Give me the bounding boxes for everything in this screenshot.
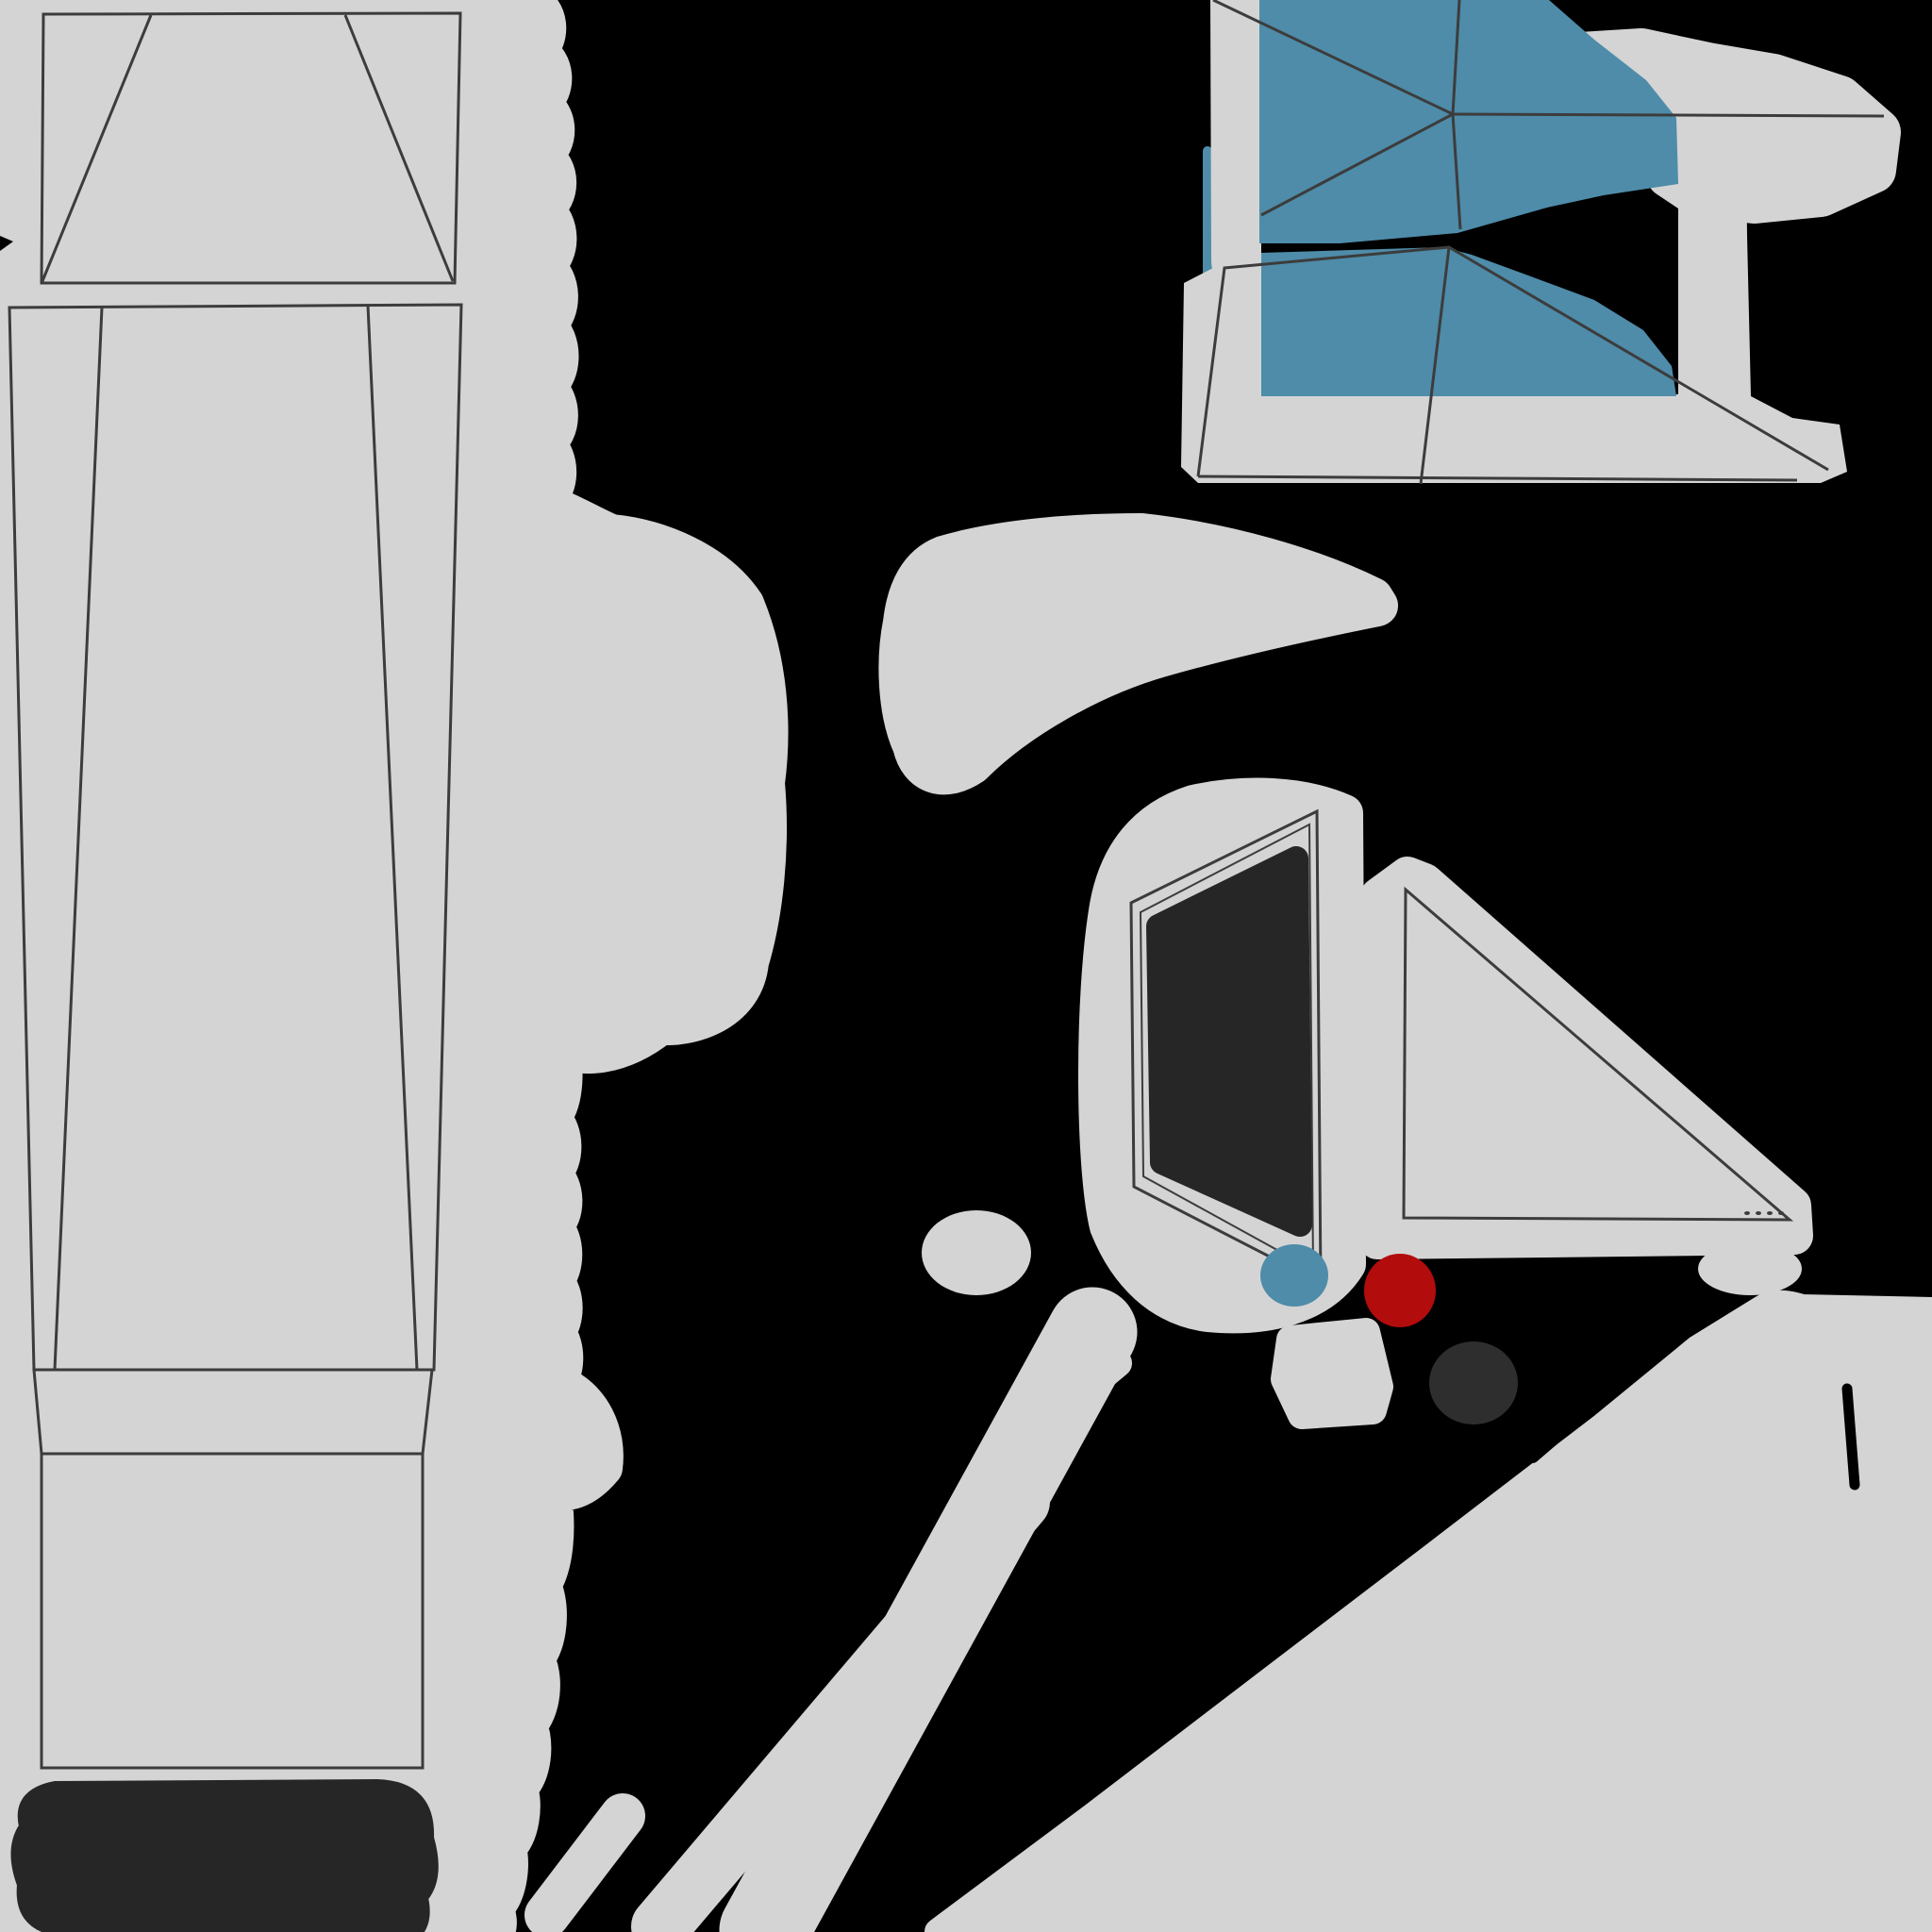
triangle-dot-4 bbox=[1778, 1211, 1784, 1215]
body-island bbox=[0, 0, 770, 1932]
paint-dot-blue bbox=[1260, 1244, 1328, 1307]
triangle-dot-2 bbox=[1756, 1211, 1761, 1215]
bumper-bar bbox=[14, 1783, 434, 1932]
underbody-sliver-a bbox=[547, 1816, 623, 1915]
triangle-dot-1 bbox=[1744, 1211, 1750, 1215]
uv-texture-atlas bbox=[0, 0, 1932, 1932]
pillar-strip-island bbox=[1210, 0, 1261, 286]
rear-window-glass bbox=[1158, 858, 1300, 1224]
quarter-triangle-island bbox=[1377, 875, 1794, 1241]
triangle-dot-3 bbox=[1767, 1211, 1773, 1215]
window-seam-horizontal bbox=[1453, 114, 1884, 116]
chassis-bridge-blob bbox=[1698, 1242, 1802, 1295]
paint-chip-white bbox=[1285, 1332, 1379, 1415]
paint-dot-dark bbox=[1429, 1341, 1518, 1424]
windshield-blue-lower bbox=[1261, 247, 1676, 396]
small-blob-island bbox=[922, 1210, 1031, 1295]
texture-atlas-canvas bbox=[0, 0, 1932, 1932]
fender-wedge-island bbox=[899, 534, 1377, 774]
paint-dot-red bbox=[1364, 1254, 1436, 1327]
